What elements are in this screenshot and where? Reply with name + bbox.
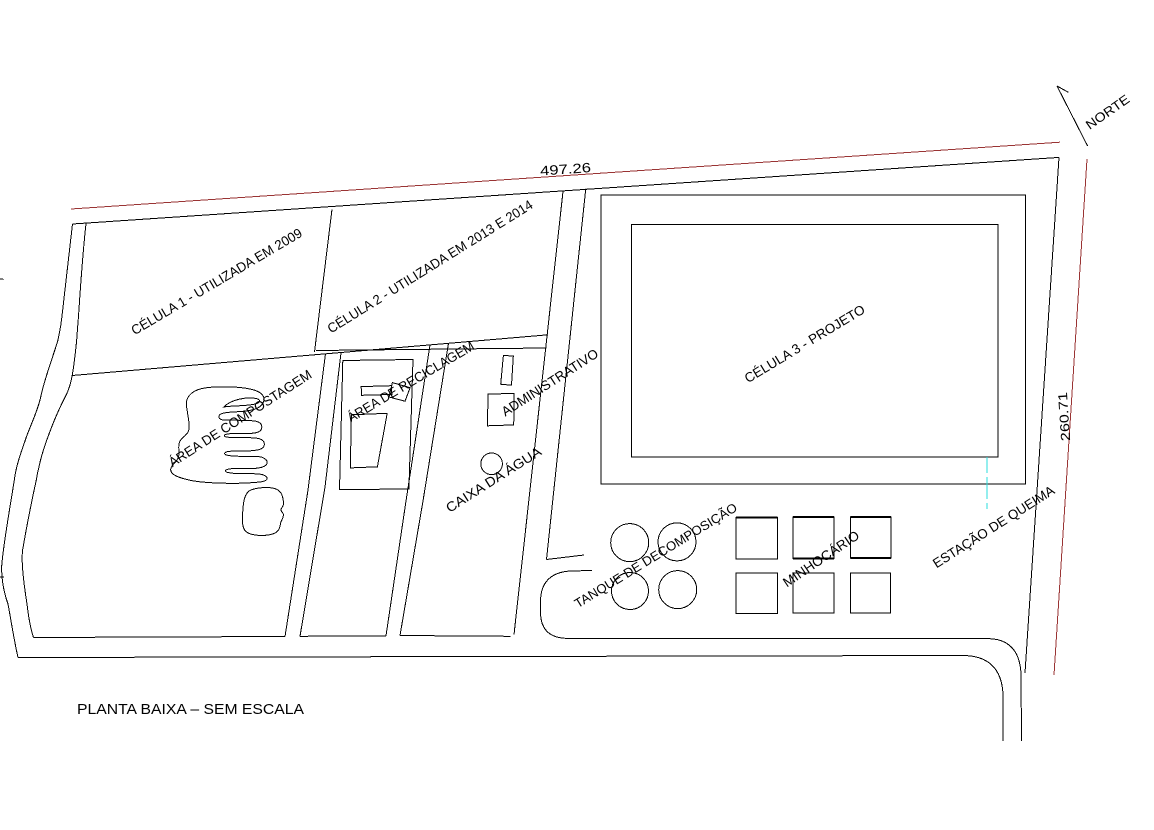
svg-text:260.71: 260.71 [1055, 392, 1073, 442]
svg-text:PLANTA BAIXA – SEM ESCALA: PLANTA BAIXA – SEM ESCALA [77, 702, 304, 718]
